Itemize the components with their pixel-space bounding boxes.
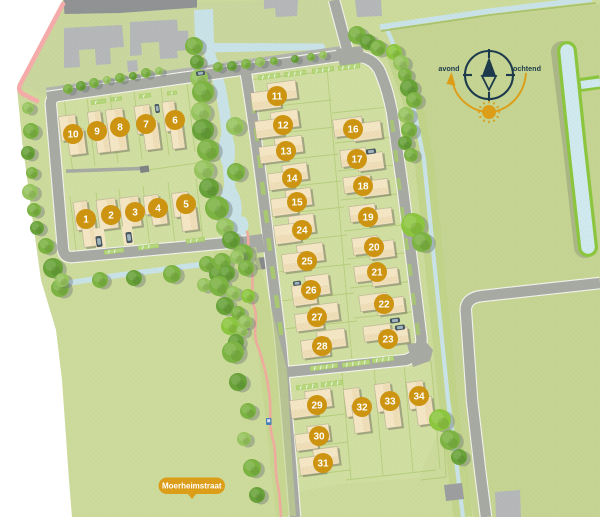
svg-text:28: 28 [316,342,328,353]
svg-text:3: 3 [132,208,138,219]
svg-text:26: 26 [305,286,317,297]
svg-text:17: 17 [351,155,363,166]
svg-text:34: 34 [413,392,425,403]
svg-text:5: 5 [183,200,189,211]
svg-text:20: 20 [368,243,380,254]
svg-text:31: 31 [317,459,329,470]
svg-text:22: 22 [378,300,390,311]
svg-text:18: 18 [357,182,369,193]
svg-text:16: 16 [347,125,359,136]
svg-text:15: 15 [291,198,303,209]
svg-text:12: 12 [277,121,289,132]
svg-text:7: 7 [143,120,149,131]
svg-text:19: 19 [362,213,374,224]
svg-text:23: 23 [382,335,394,346]
svg-text:30: 30 [313,432,325,443]
svg-text:11: 11 [272,92,283,103]
svg-text:24: 24 [296,226,308,237]
svg-text:6: 6 [172,116,178,127]
svg-text:4: 4 [155,204,161,215]
svg-text:Moerheimstraat: Moerheimstraat [162,482,222,491]
svg-text:25: 25 [301,257,313,268]
svg-text:9: 9 [94,127,100,138]
svg-text:ochtend: ochtend [513,64,541,73]
svg-text:8: 8 [117,123,123,134]
svg-text:27: 27 [311,313,323,324]
svg-text:1: 1 [83,215,89,226]
svg-text:2: 2 [108,211,114,222]
svg-text:32: 32 [356,403,368,414]
svg-text:33: 33 [384,397,396,408]
svg-text:10: 10 [67,130,79,141]
svg-text:13: 13 [280,147,292,158]
svg-text:14: 14 [286,174,298,185]
svg-text:21: 21 [371,268,383,279]
svg-text:29: 29 [311,401,323,412]
svg-text:avond: avond [438,64,459,73]
